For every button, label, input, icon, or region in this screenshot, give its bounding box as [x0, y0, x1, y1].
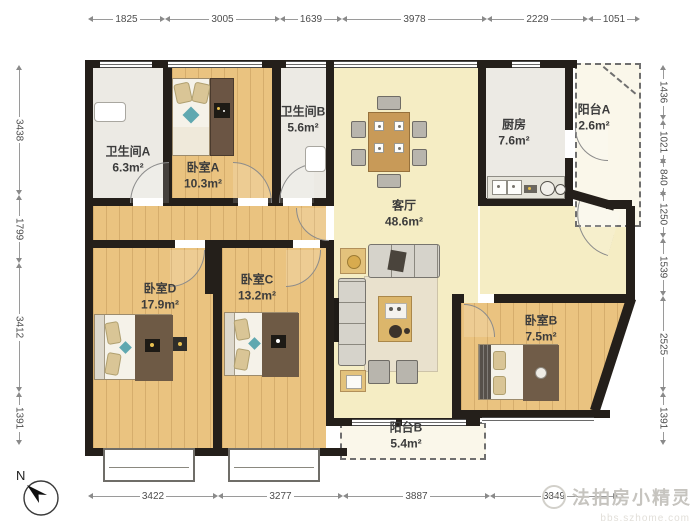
room-corridor	[93, 206, 326, 240]
wall-outer-left	[85, 60, 93, 456]
dim-bottom-1: 3277	[218, 489, 343, 503]
dim-top-1: 3005	[165, 12, 280, 26]
dim-right-6: 1391	[656, 392, 670, 445]
dining-chair	[412, 149, 427, 166]
ottoman	[396, 360, 418, 384]
window-bathroom-a	[100, 61, 152, 68]
wall-kitchen-left	[478, 60, 486, 206]
window-bathroom-b	[286, 61, 326, 68]
wall-beda-bathb	[272, 60, 281, 206]
dim-top-2: 1639	[280, 12, 342, 26]
ottoman	[368, 360, 390, 384]
basin-bathroom-a	[94, 102, 126, 122]
dim-left-2: 3412	[12, 263, 26, 392]
dim-top-0: 1825	[88, 12, 165, 26]
dining-chair	[351, 121, 366, 138]
bay-window-bedroom-c	[228, 448, 320, 482]
bed-bedroom-b	[478, 344, 558, 400]
room-foyer	[480, 206, 575, 294]
side-table-top	[340, 248, 366, 274]
dim-left-3: 1391	[12, 392, 26, 445]
dim-right-3: 1250	[656, 190, 670, 238]
compass-north-label: N	[16, 468, 25, 483]
dining-chair	[377, 96, 401, 110]
dining-chair	[351, 149, 366, 166]
wall-kitchen-bottom	[478, 198, 568, 206]
dim-right-0: 1436	[656, 65, 670, 120]
tv-living	[334, 298, 339, 342]
compass: N	[16, 470, 64, 522]
dim-top-3: 3978	[342, 12, 487, 26]
wall-bedb-top-2	[494, 294, 634, 303]
dim-right-4: 1539	[656, 238, 670, 296]
bed-bedroom-c	[224, 312, 298, 376]
dim-top-5: 1051	[588, 12, 640, 26]
dim-left-1: 1799	[12, 195, 26, 263]
label-living: 客厅48.6m²	[385, 198, 423, 229]
dining-chair	[412, 121, 427, 138]
dim-top-4: 2229	[487, 12, 588, 26]
wardrobe-bedroom-a	[210, 78, 234, 156]
wall-outer-right	[626, 206, 635, 302]
window-bedroom-a	[168, 61, 262, 68]
dining-table	[368, 112, 410, 172]
basin-bathroom-b	[305, 146, 326, 172]
wall-stub	[205, 240, 213, 294]
dim-left-0: 3438	[12, 65, 26, 195]
window-bedroom-b	[482, 417, 594, 423]
wall-bathb-living	[326, 60, 334, 206]
label-kitchen: 厨房7.6m²	[498, 117, 529, 148]
dim-right-1: 1021	[656, 120, 670, 158]
bed-bedroom-d	[94, 314, 172, 380]
watermark-mascot-icon	[542, 485, 566, 509]
sofa-top	[368, 244, 440, 278]
sofa-left	[338, 278, 366, 366]
dim-bottom-0: 3422	[88, 489, 218, 503]
nightstand-bedroom-d	[173, 337, 187, 351]
dining-chair	[377, 174, 401, 188]
label-bedroom-d: 卧室D17.9m²	[141, 281, 179, 312]
coffee-table	[378, 296, 412, 342]
wall-corridor-top-2	[168, 198, 238, 206]
watermark: 法拍房小精灵	[542, 484, 692, 510]
watermark-text: 法拍房小精灵	[572, 484, 692, 510]
label-bathroom-a: 卫生间A6.3m²	[106, 144, 151, 175]
wall-kitchen-right-1	[565, 60, 573, 130]
dim-bottom-2: 3887	[343, 489, 490, 503]
label-balcony-b: 阳台B5.4m²	[390, 420, 423, 451]
wall-bedd-bedc	[213, 240, 222, 456]
dim-right-5: 2525	[656, 296, 670, 392]
label-bathroom-b: 卫生间B5.6m²	[281, 104, 326, 135]
wall-corridor-top-1	[85, 198, 133, 206]
watermark-subtext: bbs.szhome.com	[600, 513, 690, 524]
bed-bedroom-a	[172, 78, 210, 156]
label-balcony-a: 阳台A2.6m²	[578, 102, 611, 133]
wall-corridor-top-4	[312, 198, 334, 206]
wall-bedb-left	[452, 294, 461, 418]
label-bedroom-a: 卧室A10.3m²	[184, 160, 222, 191]
label-bedroom-c: 卧室C13.2m²	[238, 272, 276, 303]
dim-right-2: 840	[656, 158, 670, 190]
wall-living-left	[326, 248, 334, 426]
label-bedroom-b: 卧室B7.5m²	[525, 313, 558, 344]
side-table-bottom	[340, 370, 366, 392]
kitchen-counter	[487, 176, 565, 199]
wall-corridor-bottom-3	[320, 240, 334, 248]
floor-plan-page: { "title": "apartment-floor-plan", "comp…	[0, 0, 700, 528]
window-living	[334, 61, 477, 68]
window-kitchen	[512, 61, 540, 68]
bay-window-bedroom-d	[103, 448, 195, 482]
wall-corridor-bottom-1	[93, 240, 175, 248]
